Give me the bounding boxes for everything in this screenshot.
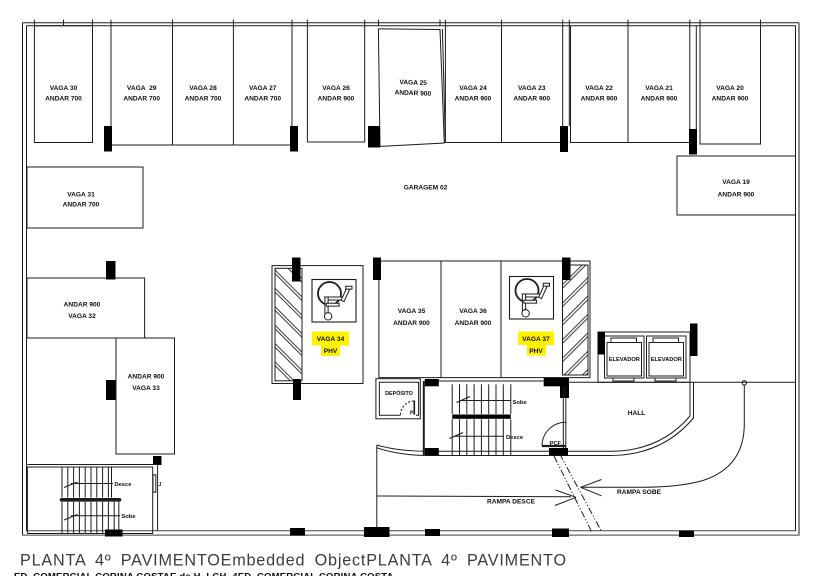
svg-text:VAGA 25: VAGA 25 [399,79,427,87]
svg-text:VAGA 31: VAGA 31 [67,192,95,199]
svg-text:J: J [159,482,162,488]
svg-text:Desce: Desce [114,482,132,488]
svg-text:Sobe: Sobe [121,514,136,520]
svg-text:ANDAR 900: ANDAR 900 [318,96,355,103]
svg-text:ELEVADOR: ELEVADOR [609,357,640,363]
svg-text:ANDAR 700: ANDAR 700 [185,96,222,103]
svg-text:GARAGEM 02: GARAGEM 02 [404,185,448,192]
svg-text:VAGA 19: VAGA 19 [722,179,750,186]
svg-text:ANDAR 900: ANDAR 900 [393,320,430,327]
svg-text:VAGA 33: VAGA 33 [132,385,160,392]
svg-text:ELEVADOR: ELEVADOR [651,357,682,363]
svg-text:VAGA 23: VAGA 23 [518,85,546,92]
svg-text:VAGA 29: VAGA 29 [127,85,157,92]
svg-text:ANDAR 700: ANDAR 700 [45,96,82,103]
svg-text:VAGA 30: VAGA 30 [50,85,78,92]
svg-text:ED. COMERCIAL CORINA COSTAE d: ED. COMERCIAL CORINA COSTAE de H. LCH. 4… [14,571,394,576]
svg-text:HALL: HALL [628,410,646,417]
svg-text:ANDAR 700: ANDAR 700 [244,96,281,103]
svg-text:ANDAR 900: ANDAR 900 [718,192,755,199]
svg-text:ANDAR 900: ANDAR 900 [394,89,431,97]
svg-text:VAGA 32: VAGA 32 [68,313,96,320]
svg-text:PHV: PHV [529,348,543,355]
svg-text:VAGA 22: VAGA 22 [585,85,613,92]
svg-text:PHV: PHV [324,348,338,355]
svg-text:RAMPA SOBE: RAMPA SOBE [617,489,662,496]
svg-text:VAGA 24: VAGA 24 [459,85,487,92]
svg-text:ANDAR 900: ANDAR 900 [641,96,678,103]
svg-text:ANDAR 900: ANDAR 900 [712,96,749,103]
svg-text:ANDAR 900: ANDAR 900 [455,96,492,103]
svg-text:ANDAR 900: ANDAR 900 [128,374,165,381]
svg-text:RAMPA DESCE: RAMPA DESCE [487,499,536,506]
svg-text:VAGA 21: VAGA 21 [645,85,673,92]
svg-text:ANDAR 900: ANDAR 900 [581,96,618,103]
svg-text:VAGA 28: VAGA 28 [189,85,217,92]
svg-text:VAGA 35: VAGA 35 [398,308,426,315]
svg-text:Desce: Desce [506,435,524,441]
svg-text:VAGA 20: VAGA 20 [716,85,744,92]
svg-text:ANDAR 700: ANDAR 700 [123,96,160,103]
svg-text:ANDAR 700: ANDAR 700 [63,202,100,209]
svg-text:P: P [410,411,414,417]
svg-text:DEPÓSITO: DEPÓSITO [385,389,413,397]
svg-text:ANDAR 900: ANDAR 900 [455,320,492,327]
svg-text:ANDAR 900: ANDAR 900 [513,96,550,103]
svg-text:VAGA 34: VAGA 34 [317,336,345,343]
svg-text:VAGA 36: VAGA 36 [459,308,487,315]
svg-text:Sobe: Sobe [513,400,528,406]
svg-text:VAGA 26: VAGA 26 [322,85,350,92]
svg-text:ANDAR 900: ANDAR 900 [64,302,101,309]
svg-text:PCF: PCF [550,441,562,447]
svg-text:PLANTA 4º PAVIMENTOEmbedded Ob: PLANTA 4º PAVIMENTOEmbedded ObjectPLANTA… [20,552,567,570]
svg-text:VAGA 37: VAGA 37 [522,336,550,343]
svg-text:VAGA 27: VAGA 27 [249,85,277,92]
